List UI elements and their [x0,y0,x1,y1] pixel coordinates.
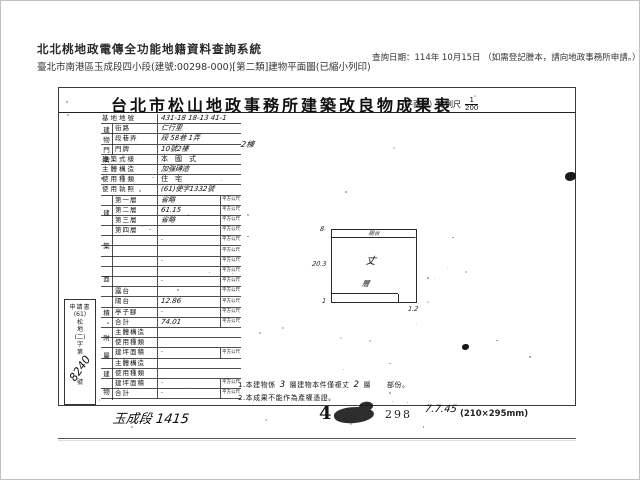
row-value: 仁行里 [157,124,241,133]
row-value: · [158,389,220,398]
scan-speck [465,271,467,273]
row-value: 10號2樓 [157,145,241,154]
row-label: 主體構造 [114,328,158,337]
scan-speck [423,426,424,427]
row-value: (61)使字1332號 [157,185,241,194]
form-notes: 1.本建物係3層建物本件僅複丈2層部份。 2.本成果不能作為產權憑證。 [238,380,410,405]
scale-fraction: 1 200 [465,97,478,112]
row-value [158,287,220,296]
table-spine-header: 建築面積 [101,196,113,329]
table-row: 陽台12.86平方公尺 [101,297,241,307]
scan-speck [389,392,391,394]
row-value: · [158,257,220,266]
application-number-handwritten: 8240 [67,353,94,383]
row-value: · [158,236,220,245]
row-value: 本 國 式 [158,155,241,164]
scan-speck [276,100,277,101]
scan-speck [447,267,448,268]
area-unit-label: 平方公尺 [220,267,241,276]
balcony-strip: 陽台 [331,230,416,238]
paper-size-label: (210×295mm) [460,409,528,419]
table-row: ·平方公尺 [101,277,241,287]
note1-text-d: 部份。 [387,381,410,389]
row-label: 合計 [114,389,158,398]
table-spine-header: 建物門牌 [101,124,113,155]
bottom-rule [58,438,576,439]
row-label: 主體構造 [101,165,158,174]
table-row: 第一層省略平方公尺 [101,196,241,206]
scale-denominator: 200 [465,105,478,112]
row-value: · [158,277,220,286]
row-value [158,369,241,378]
table-row: 平方公尺 [101,246,241,256]
table-row: 使用種類住 宅 [101,175,241,185]
application-number-token: (二) [75,334,86,342]
document-number: 298 [385,408,412,421]
scan-speck [177,289,179,291]
area-unit-label: 平方公尺 [220,226,241,235]
row-label: 合計 [114,318,158,327]
table-row: 主體構造加強磚造 [101,165,241,175]
row-value: · [158,348,220,357]
plan-floor-mark: 層 [361,278,370,289]
table-row: ·平方公尺 [101,236,241,246]
area-unit-label: 平方公尺 [220,246,241,255]
scan-speck [101,177,103,179]
row-label: 露台 [114,287,158,296]
table-row: 主體構造 [101,359,241,369]
scan-speck [379,98,381,100]
plan-center-mark: 丈 [365,252,377,267]
row-label: 第二層 [114,206,158,215]
table-row: 使用執照(61)使字1332號 [101,185,241,195]
row-label: 第三層 [114,216,158,225]
table-row: 建坪面積·平方公尺 [101,348,241,358]
table-row: 亭子腳·平方公尺 [101,308,241,318]
row-label: 使用執照 [101,185,158,194]
row-label: 陽台 [114,297,158,306]
row-label: 段巷弄 [114,134,158,143]
scan-speck [107,322,109,324]
application-number-token: 地 [77,326,83,334]
page-marker: 4 [319,403,332,424]
plan-dim-bottom-left: 1 [321,297,326,305]
footer-handwritten-number: 7.7.45 [424,404,457,415]
area-unit-label: 平方公尺 [220,348,241,357]
door-number-overflow: 2棟 [240,139,255,150]
row-value: 61.15 [157,206,220,215]
note1-hw-2: 2 [350,380,364,390]
ink-stamp [333,405,374,425]
row-label: 使用種類 [101,175,158,184]
note1-text-b: 層建物本件僅複丈 [290,381,350,389]
table-row: 露台平方公尺 [101,287,241,297]
row-value [158,328,241,337]
application-number-box: 申請書 (61)松地(二)字第8240號 [64,299,96,405]
row-value [158,267,220,276]
area-unit-label: 平方公尺 [220,196,241,205]
scan-speck [369,340,371,342]
table-row: 平方公尺 [101,267,241,277]
scan-speck [131,426,133,428]
row-label: 街路 [114,124,158,133]
system-title: 北北桃地政電傳全功能地籍資料查詢系統 [37,41,262,57]
row-label [114,257,158,266]
row-label: 基地地號 [101,114,158,123]
row-value: · [158,379,220,388]
document-subtitle: 臺北市南港區玉成段四小段(建號:00298-000)[第二類]建物平面圖(已縮小… [37,59,371,73]
table-row: 使用種類 [101,338,241,348]
scan-speck [265,419,267,421]
scan-speck [247,214,249,216]
row-label: 第四層 [114,226,158,235]
scale-indicator: （平面圖）比例尺 1 200 [397,97,478,112]
note1-hw-1: 3 [276,380,290,390]
table-row: 基地地號431-18 18-13 41-1 [101,114,241,124]
table-row: 段巷弄段 58巷 1弄 [101,134,241,144]
table-row: 使用種類 [101,369,241,379]
note1-text-c: 層 [364,381,372,389]
row-label: 主體構造 [114,359,158,368]
row-label: 亭子腳 [114,308,158,317]
survey-form-scan: 台北市松山地政事務所建築改良物成果表 （平面圖）比例尺 1 200 基地地號43… [58,87,576,406]
scan-speck [139,190,141,192]
row-label: 門牌 [114,145,158,154]
application-number-token: (61) [74,311,86,319]
area-unit-label: 平方公尺 [220,287,241,296]
table-row: 第四層平方公尺 [101,226,241,236]
area-unit-label: 平方公尺 [220,318,241,327]
scan-speck [474,95,476,97]
row-value: 住 宅 [158,175,241,184]
area-unit-label: 平方公尺 [220,277,241,286]
row-value: 段 58巷 1弄 [157,134,241,143]
row-label: 第一層 [114,196,158,205]
row-label [114,277,158,286]
scan-speck [340,337,341,338]
row-label: 使用種類 [114,369,158,378]
ink-blot [565,172,576,181]
note1-text-a: 1.本建物係 [238,381,276,389]
row-value: 12.86 [157,297,220,306]
area-unit-label: 平方公尺 [220,236,241,245]
plan-dim-left: 20.3 [311,260,327,268]
row-value [158,246,220,255]
row-value: 加強磚造 [157,165,241,174]
row-value: 省略 [157,216,220,225]
table-row: 街路仁行里 [101,124,241,134]
table-row: ·平方公尺 [101,257,241,267]
query-system-window: 北北桃地政電傳全功能地籍資料查詢系統 臺北市南港區玉成段四小段(建號:00298… [0,0,640,480]
row-label: 建坪面積 [114,348,158,357]
scan-speck [115,387,117,389]
title-rule [59,112,575,113]
row-value [158,338,241,347]
row-value [158,359,241,368]
table-row: 門牌10號2樓 [101,145,241,155]
floor-plan-drawing: 陽台 丈 層 8 20.3 1 1.2 [331,229,417,303]
table-row: 建坪面積·平方公尺 [101,379,241,389]
note-line-1: 1.本建物係3層建物本件僅複丈2層部份。 [238,380,410,390]
area-unit-label: 平方公尺 [220,206,241,215]
row-value: 431-18 18-13 41-1 [157,114,241,123]
area-unit-label: 平方公尺 [220,308,241,317]
plan-notch-line-v [398,294,399,302]
application-number-token: 字 [77,341,83,349]
area-unit-label: 平方公尺 [220,216,241,225]
section-handwriting: 玉成段 1415 [112,408,191,427]
table-row: 合計·平方公尺 [101,389,241,399]
plan-notch-line [332,293,398,294]
note-line-2: 2.本成果不能作為產權憑證。 [238,393,410,403]
scan-speck [175,421,176,422]
scan-speck [350,423,352,425]
table-row: 第三層省略平方公尺 [101,216,241,226]
scale-label: （平面圖）比例尺 [397,99,461,110]
table-spine-header: 附屬建物 [101,328,113,399]
scan-speck [345,191,347,193]
ink-blot [462,344,469,350]
application-label: 申請書 [69,302,90,311]
application-number-token: 松 [77,319,83,327]
row-value: 74.01 [157,318,220,327]
scan-speck [529,356,531,358]
area-unit-label: 平方公尺 [220,257,241,266]
row-label [114,267,158,276]
building-data-table: 基地地號431-18 18-13 41-1街路仁行里段巷弄段 58巷 1弄門牌1… [101,114,241,399]
row-label [114,246,158,255]
area-unit-label: 平方公尺 [220,297,241,306]
scan-speck [282,327,284,329]
table-row: 建築式樣本 國 式 [101,155,241,165]
table-row: 合計74.01平方公尺 [101,318,241,328]
row-value: 省略 [157,196,220,205]
scan-speck [427,277,429,279]
table-row: 第二層61.15平方公尺 [101,206,241,216]
row-label [114,236,158,245]
query-date-label: 查詢日期：114年 10月15日 （如需登記謄本，請向地政事務所申請。） [372,51,639,63]
table-row: 主體構造 [101,328,241,338]
row-label: 使用種類 [114,338,158,347]
row-label: 建坪面積 [114,379,158,388]
row-value: · [158,308,220,317]
row-value [158,226,220,235]
scan-speck [259,332,261,334]
plan-dim-bottom-right: 1.2 [407,305,418,313]
